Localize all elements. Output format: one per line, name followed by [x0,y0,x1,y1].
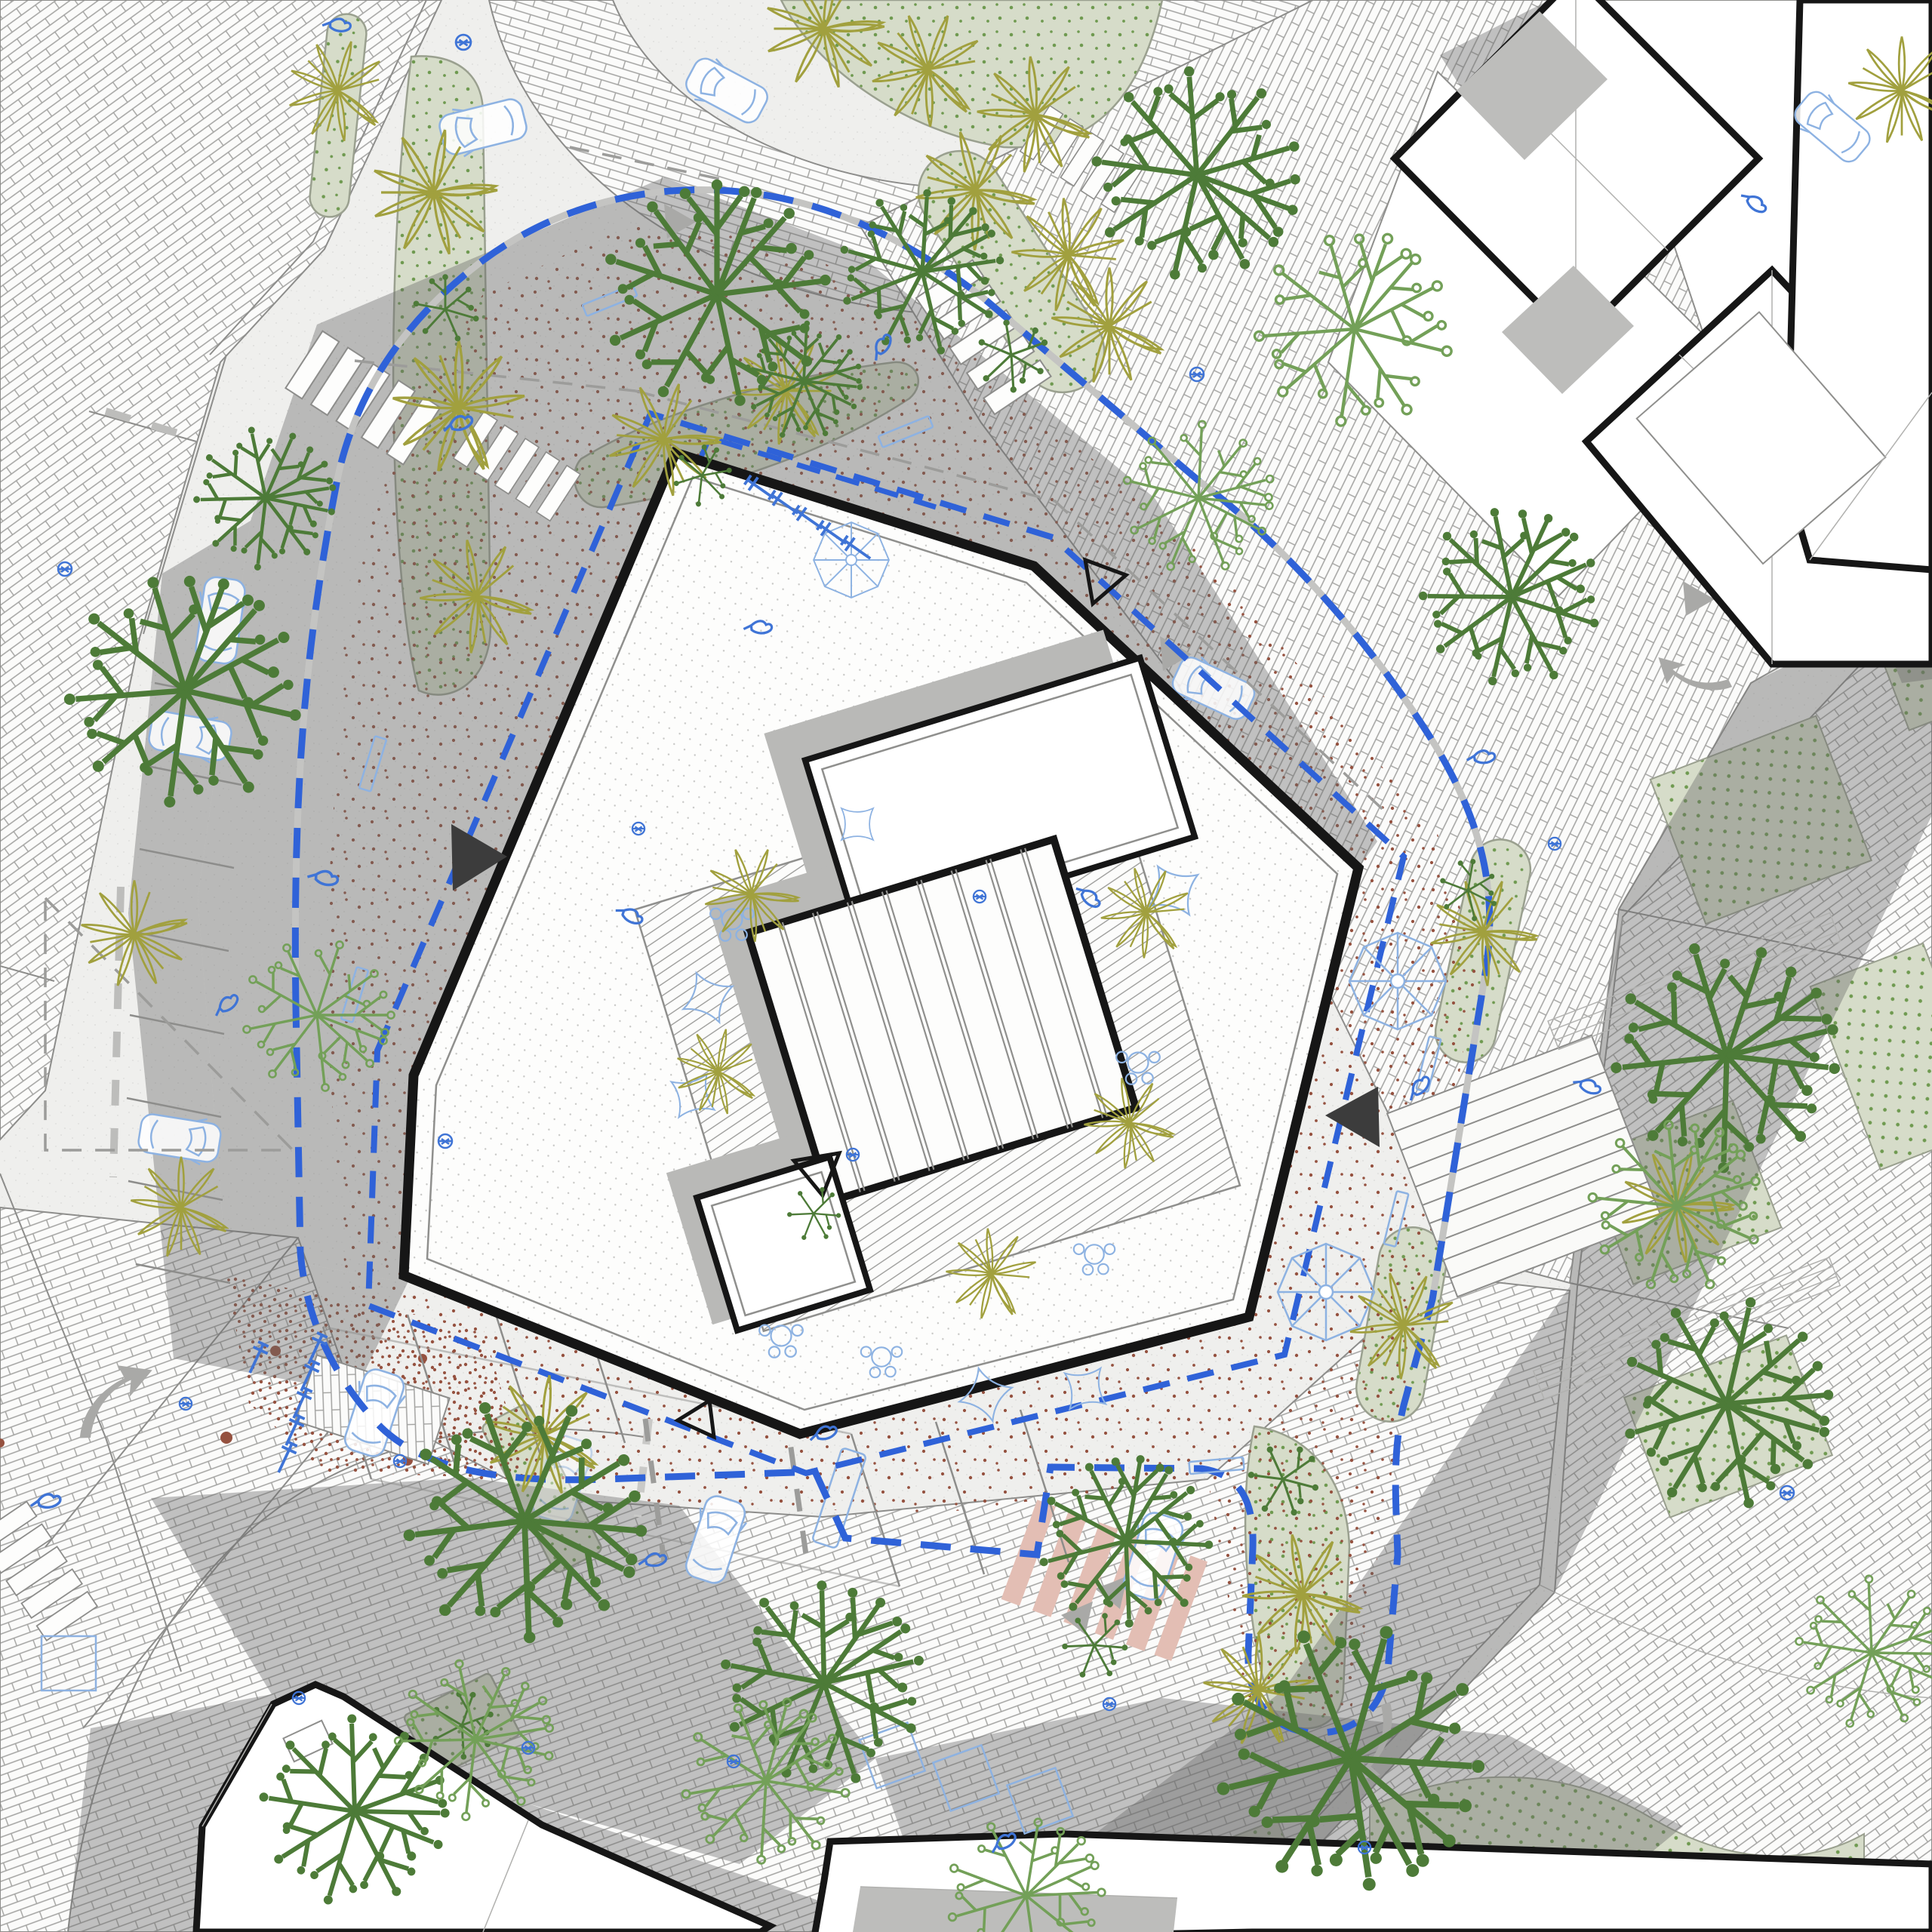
parasol-umbrella-1 [814,522,889,598]
parasol-umbrella-3 [1278,1244,1374,1340]
site-plan-drawing [0,0,1932,1932]
site-plan-page [0,0,1932,1932]
parasol-umbrella-2 [1349,933,1446,1029]
